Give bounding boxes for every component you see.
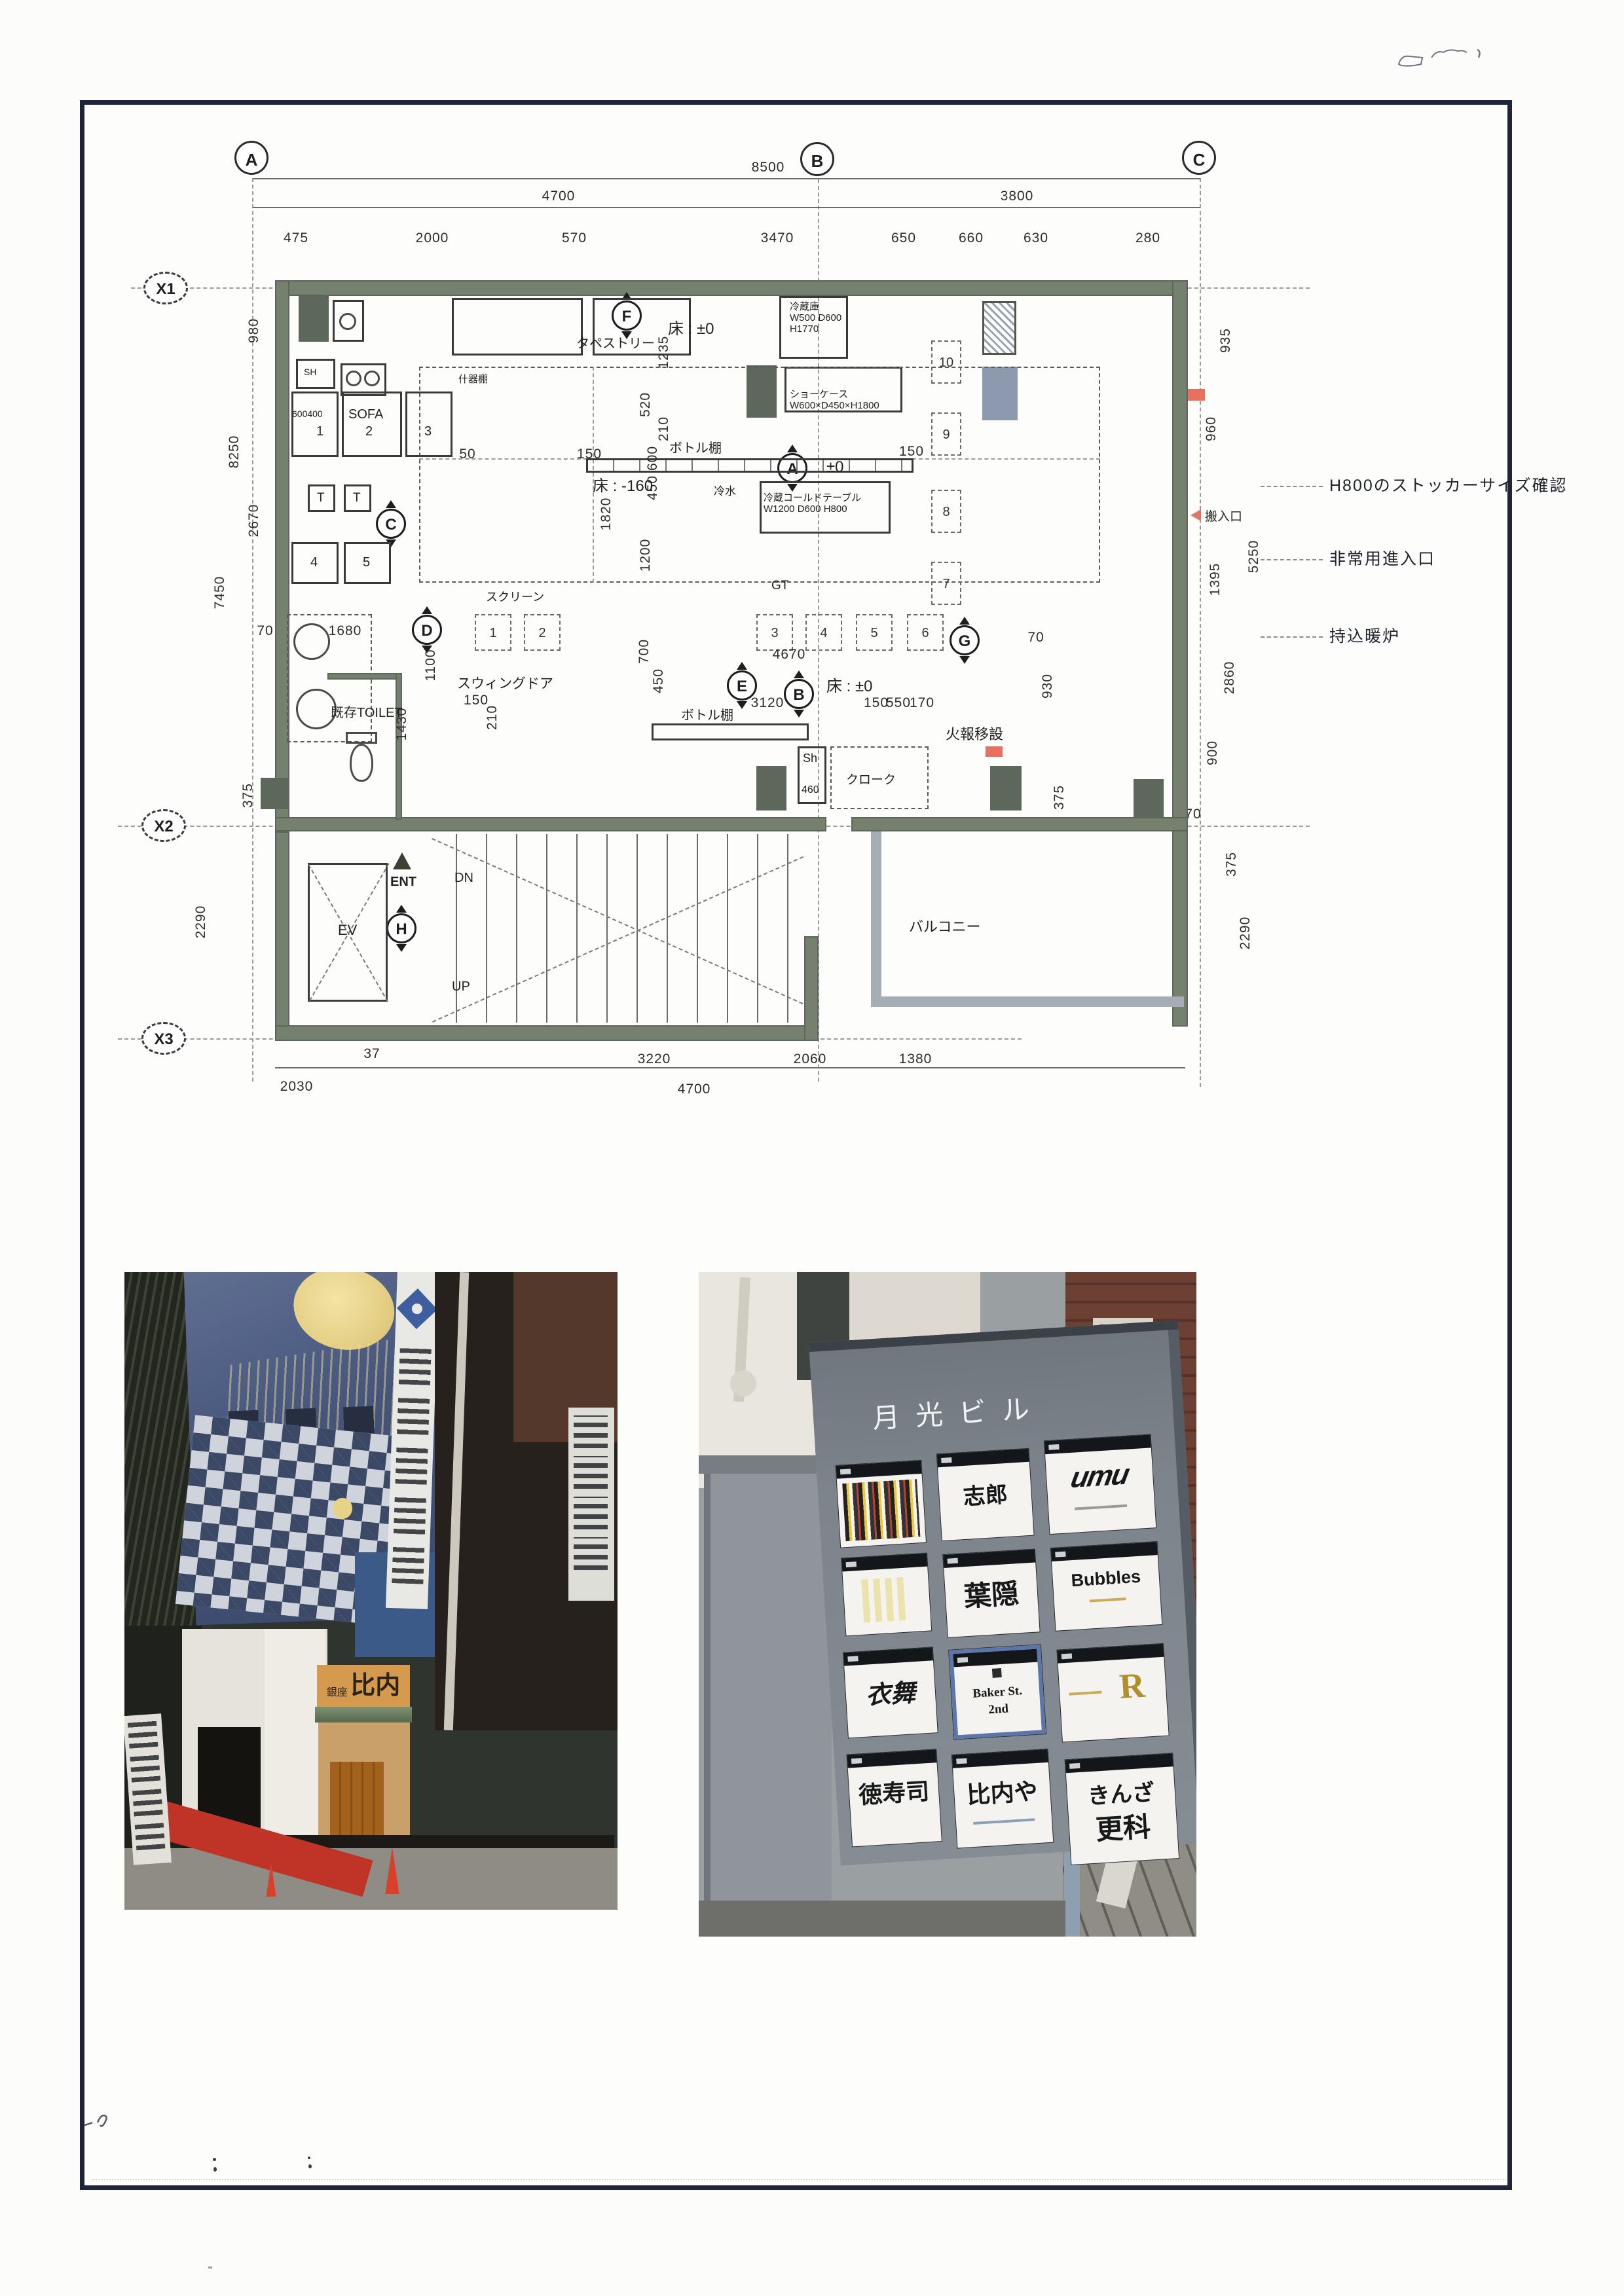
grid-bubble-c: C: [1182, 141, 1216, 175]
label-dn: DN: [454, 871, 473, 886]
equip-line: W500 D600: [790, 312, 841, 323]
pylon-text-block: [396, 1446, 428, 1485]
section-mark-b: B: [784, 679, 814, 709]
dim: 375: [1052, 771, 1067, 824]
tenant-panel-faint: [841, 1554, 931, 1636]
seat-no: 2: [538, 626, 545, 640]
grid-label: B: [811, 151, 824, 171]
section-mark-h: H: [386, 913, 416, 943]
tenant-panel: きんざ 更科: [1065, 1753, 1179, 1865]
bottle-shelf-bar: [586, 458, 913, 473]
dim: 3220: [638, 1051, 671, 1067]
tenant-panel: 志郎: [937, 1449, 1034, 1540]
counter-seat: 1: [475, 614, 511, 651]
column-hatched: [982, 301, 1016, 355]
grid-bubble-x1: X1: [143, 272, 188, 304]
dim: 900: [1205, 727, 1221, 779]
scanned-document-page: A B C X1 X2 X3 8500 4700 3800 475 2000 5…: [0, 0, 1624, 2296]
tenant-panel: 葉隠: [943, 1550, 1039, 1637]
equip-fridge: 冷蔵庫 W500 D600 H1770: [790, 301, 841, 335]
label-ent: ENT: [390, 875, 416, 890]
equip-line: H1770: [790, 323, 841, 335]
label-up: UP: [452, 979, 470, 994]
building-edge-highlight: [444, 1272, 469, 1730]
entrance-arrow: [393, 852, 411, 869]
balcony-wall-left: [871, 831, 881, 1007]
tenant-panel-baker: Baker St. 2nd: [949, 1645, 1046, 1739]
dim: 50: [459, 446, 475, 462]
photo-building-exterior: 銀座 比内や: [124, 1272, 618, 1910]
note-emergency-entry: 非常用進入口: [1329, 546, 1435, 570]
dim: 520: [638, 378, 654, 431]
panel-floor-strip: [943, 1550, 1035, 1569]
wall-table: 8: [931, 490, 961, 533]
dim: 2290: [1238, 907, 1253, 959]
section-mark-g: G: [950, 625, 980, 655]
dim: 475: [284, 230, 308, 246]
label-gt: GT: [771, 579, 788, 593]
note-leader: [1261, 559, 1323, 560]
note-leader: [1261, 636, 1323, 638]
panel-floor-strip: [1065, 1753, 1173, 1773]
floor-tick: [846, 1561, 857, 1567]
grid-label: X1: [156, 280, 175, 298]
dim: 150: [864, 695, 889, 711]
panel-floor-strip: [843, 1647, 933, 1666]
label-floor: 床 : ±0: [668, 316, 714, 338]
seat-no: 1: [316, 424, 323, 439]
carry-in-arrow: [1190, 509, 1201, 521]
pylon-text-block: [574, 1415, 608, 1448]
seat-no: 6: [921, 626, 929, 640]
tenant-name: R: [1078, 1662, 1186, 1709]
equip-showcase: ショーケース W600×D450×H1800: [790, 389, 879, 411]
label-bottle-shelf: ボトル棚: [669, 437, 722, 456]
tenant-panel: 比内や: [952, 1749, 1053, 1848]
storefront-pillar: [265, 1629, 325, 1845]
panel-floor-strip: [937, 1449, 1029, 1468]
grid-bubble-x2: X2: [141, 809, 186, 842]
floor-tick: [1048, 1444, 1059, 1450]
dim: 660: [959, 230, 984, 246]
column: [261, 778, 289, 809]
pencil-scribble-top: [1393, 38, 1505, 77]
seat-no: 8: [942, 505, 950, 519]
wall-lower-bottom: [275, 1025, 819, 1041]
dim: 570: [562, 230, 587, 246]
panel-subtext-bar: [1075, 1504, 1127, 1510]
burner: [364, 371, 380, 386]
sink-bowl: [339, 313, 356, 330]
toilet-fixture: [350, 744, 373, 782]
label-cloak: クローク: [846, 770, 896, 788]
seat-no: 10: [939, 355, 953, 370]
small-sign-pylon-right: [568, 1408, 614, 1601]
scan-dot: [308, 2157, 310, 2159]
scan-dot: [213, 2167, 217, 2172]
panel-subtext-bar: [973, 1818, 1035, 1825]
mark-label: B: [793, 686, 804, 704]
tenant-panel: 徳寿司: [847, 1749, 942, 1846]
label-balcony: バルコニー: [909, 915, 981, 936]
panel-floor-strip: [836, 1461, 922, 1479]
dim: 70: [1027, 630, 1044, 646]
counter-seat: 6: [907, 614, 944, 651]
label-bottle-shelf: ボトル棚: [681, 704, 733, 723]
dim: 2290: [193, 896, 209, 948]
burner: [346, 371, 361, 386]
storefront-awning: [315, 1707, 412, 1722]
mark-label: C: [385, 516, 396, 534]
dim: 630: [1024, 230, 1048, 246]
seat-no: 4: [310, 555, 318, 570]
wall-stair-right: [804, 936, 819, 1041]
panel-floor-strip: [953, 1649, 1037, 1667]
seat-no: 2: [365, 424, 373, 439]
equip-line: ショーケース: [790, 389, 879, 400]
grid-label: X3: [154, 1030, 173, 1048]
grid-label: A: [246, 150, 258, 170]
dim: 3470: [761, 230, 794, 246]
panel-floor-strip: [952, 1749, 1048, 1768]
label-sofa: SOFA: [348, 407, 383, 422]
table-label: T: [353, 491, 361, 505]
toilet-wall: [327, 673, 402, 680]
tenant-panel: Bubbles: [1051, 1542, 1162, 1631]
dim: 150: [577, 446, 602, 462]
mark-label: G: [959, 632, 971, 650]
seat-no: 3: [424, 424, 432, 439]
dim: 2670: [246, 494, 262, 547]
dim: 935: [1218, 314, 1234, 367]
label-fire-move: 火報移設: [946, 723, 1003, 744]
dim: 170: [910, 695, 934, 711]
grid-bubble-x3: X3: [141, 1022, 186, 1055]
wall-table: 10: [931, 340, 961, 384]
wall-top: [275, 280, 1188, 296]
label-swing-door: スウィングドア: [457, 673, 553, 693]
grid-label: C: [1193, 150, 1206, 170]
scan-dot: [213, 2158, 216, 2161]
utility-box: [704, 1468, 832, 1927]
tenant-name: 志郎: [938, 1475, 1032, 1512]
pencil-scribble-bottom: [82, 2103, 128, 2133]
label-floor: 床 : -160: [593, 473, 653, 496]
seat-no: 5: [870, 626, 877, 640]
label-toilet: 既存TOILET: [331, 702, 403, 721]
dim: 37: [363, 1046, 380, 1062]
tenant-panel: umu: [1044, 1434, 1156, 1534]
bottle-shelf-lower: [652, 723, 809, 740]
tenant-panel-r: R: [1057, 1644, 1168, 1742]
label-cold-water: 冷水: [714, 482, 736, 498]
tenant-name: 葉隠: [944, 1570, 1038, 1615]
pylon-text-block: [394, 1495, 426, 1535]
tenant-name: 徳寿司: [849, 1772, 940, 1811]
column: [756, 766, 786, 811]
mark-label: H: [396, 920, 407, 938]
dim: 700: [637, 625, 652, 678]
dim: 375: [1224, 838, 1240, 890]
tenant-name: 比内や: [953, 1772, 1051, 1812]
label-carry-in: 搬入口: [1205, 507, 1242, 524]
ground-below-pylon: [699, 1901, 1065, 1937]
pylon-text-block: [392, 1545, 424, 1584]
dim: 650: [891, 230, 916, 246]
seat-no: 9: [942, 428, 950, 442]
equip-line: W1200 D600 H800: [764, 503, 861, 515]
panel-floor-strip: [841, 1554, 927, 1572]
dim-line: [275, 1067, 1185, 1068]
dim: 1380: [899, 1051, 932, 1067]
carry-in-marker: [1188, 389, 1205, 401]
sign-row: [130, 1755, 160, 1783]
sign-row: [128, 1721, 158, 1749]
scan-artifact-line: [92, 2179, 1506, 2180]
tenant-panel-art: [836, 1461, 926, 1548]
dim: 2060: [794, 1051, 827, 1067]
scan-dot: [208, 2267, 212, 2269]
dim: 210: [485, 691, 500, 744]
pylon-text-block: [574, 1537, 608, 1570]
dim: 1200: [638, 529, 654, 581]
floor-tick: [1061, 1653, 1072, 1659]
note-leader: [1261, 486, 1323, 487]
grid-bubble-b: B: [800, 142, 834, 176]
fire-alarm-marker: [986, 746, 1003, 757]
dim: 1820: [599, 488, 614, 540]
dim: 1100: [423, 639, 439, 691]
dim: 1680: [329, 623, 362, 639]
tenant-name: Baker St.: [955, 1683, 1040, 1703]
dim-line: [253, 207, 1200, 208]
floor-tick: [956, 1758, 967, 1764]
pylon-text-block: [574, 1456, 608, 1489]
table-label: T: [317, 491, 325, 505]
equip-cold-table: 冷蔵コールドテーブル W1200 D600 H800: [764, 492, 861, 515]
wall-table: 9: [931, 412, 961, 456]
photo-tenant-sign: 月光ビル 志郎 umu 葉隠: [699, 1272, 1196, 1937]
dim: 70: [257, 623, 273, 639]
panel-floor-strip: [1044, 1434, 1151, 1454]
dim: 4700: [542, 189, 576, 204]
dim: 4670: [773, 647, 806, 663]
floor-tick: [941, 1457, 951, 1463]
note-hearth: 持込暖炉: [1329, 623, 1400, 647]
dim: 3800: [1001, 189, 1034, 204]
floor-tick: [847, 1656, 858, 1662]
sign-pylon: 月光ビル 志郎 umu 葉隠: [809, 1321, 1196, 1866]
utility-box-top: [699, 1455, 833, 1474]
tenant-name-line2: 更科: [1068, 1803, 1177, 1850]
dim: 960: [1204, 403, 1219, 455]
storefront-sign-prefix: 銀座: [327, 1687, 348, 1698]
equip-line: 冷蔵コールドテーブル: [764, 492, 861, 503]
counter-seat: 4: [805, 614, 842, 651]
label-sh-size: 460: [802, 784, 819, 796]
floor-tick: [957, 1657, 968, 1663]
dim: 550: [886, 695, 911, 711]
counter-outline: [419, 367, 1100, 583]
dim: 2000: [416, 230, 449, 246]
dim: 8250: [227, 426, 242, 478]
mark-label: D: [421, 622, 432, 640]
label-shelf: SH: [304, 367, 316, 377]
dim: 2030: [280, 1079, 314, 1095]
dim: 8500: [752, 160, 785, 175]
label-utensil-shelf: 什器棚: [458, 372, 488, 386]
toilet-tank: [346, 732, 377, 744]
checker-lamp: [333, 1498, 352, 1519]
wall-left: [275, 280, 289, 837]
baker-crest-dot: [992, 1668, 1002, 1678]
sidewalk: [124, 1848, 618, 1910]
note-stocker: H800のストッカーサイズ確認: [1329, 473, 1568, 496]
grid-bubble-a: A: [234, 141, 268, 175]
equip-line: 冷蔵庫: [790, 301, 841, 312]
storefront-sign-board: 銀座 比内や: [317, 1665, 410, 1707]
dim: 375: [240, 769, 256, 822]
floor-tick: [840, 1468, 851, 1474]
equip-line: W600×D450×H1800: [790, 400, 879, 411]
column: [299, 296, 329, 342]
dim: 2860: [1222, 651, 1238, 704]
seat-no: 1: [489, 626, 496, 640]
pylon-text-block: [399, 1346, 432, 1385]
wall-table: 7: [931, 562, 961, 605]
tenant-name-line2: 2nd: [956, 1700, 1041, 1719]
grid-label: X2: [154, 818, 173, 835]
column: [990, 766, 1022, 811]
floor-tick: [1055, 1552, 1065, 1558]
grid-line-c: [1200, 178, 1201, 1087]
sign-row: [132, 1789, 163, 1817]
section-mark-c: C: [376, 509, 406, 539]
sign-row: [135, 1822, 166, 1850]
counter-seat: 5: [856, 614, 893, 651]
dim: 980: [246, 304, 262, 357]
label-sh: Sh: [803, 752, 817, 765]
dim: 280: [1135, 230, 1160, 246]
pylon-text-block: [397, 1396, 430, 1435]
panel-floor-strip: [1057, 1644, 1164, 1664]
faint-yellow-mark: [861, 1577, 910, 1623]
floor-tick: [851, 1758, 862, 1764]
sofa-box: [291, 392, 339, 457]
wall-x2-left: [275, 817, 826, 831]
column: [1134, 779, 1164, 817]
dim: 5250: [1246, 530, 1262, 583]
dim: 3120: [751, 695, 784, 711]
dim: 1395: [1208, 553, 1223, 606]
dim: 4700: [678, 1082, 711, 1097]
building-name: 月光ビル: [871, 1386, 1046, 1436]
mosaic-art: [842, 1479, 920, 1541]
label-floor: 床 : ±0: [826, 673, 873, 696]
seat-no: 4: [820, 626, 827, 640]
counter-seat: 3: [756, 614, 793, 651]
seat-no: 7: [942, 577, 950, 591]
scan-dot: [308, 2164, 312, 2168]
label-screen: スクリーン: [486, 588, 544, 605]
dim: 450: [651, 655, 667, 707]
panel-subtext-bar: [1090, 1597, 1126, 1602]
pylon-text-block: [574, 1497, 608, 1529]
tenant-name: Bubbles: [1052, 1565, 1160, 1592]
tenant-name: umu: [1044, 1457, 1156, 1497]
pipe-elbow: [730, 1370, 756, 1396]
floor-tick: [948, 1558, 958, 1564]
label-floor: ±0: [826, 458, 844, 477]
tenant-name: [843, 1572, 928, 1577]
tenant-panel: 衣舞: [843, 1647, 938, 1738]
wall-right: [1172, 280, 1188, 1027]
panel-floor-strip: [847, 1749, 937, 1768]
dim: 150: [899, 444, 924, 460]
tenant-name: 衣舞: [845, 1671, 936, 1712]
dim-line: [253, 178, 1200, 179]
counter-seat: 2: [524, 614, 561, 651]
floor-tick: [1069, 1763, 1080, 1769]
label-ev: EV: [338, 922, 357, 939]
label-tapestry: タペストリー: [576, 333, 655, 352]
balcony-wall-bottom: [871, 996, 1184, 1007]
panel-floor-strip: [1051, 1542, 1158, 1561]
dim: 930: [1040, 660, 1056, 712]
label-sofa-dim: 600400: [292, 409, 323, 419]
seat-no: 3: [771, 626, 778, 640]
kitchen-unit: [452, 298, 583, 355]
mark-label: E: [737, 678, 747, 695]
seat-no: 5: [363, 555, 370, 570]
dim: 7450: [212, 566, 228, 619]
wall-lower-left: [275, 831, 289, 1041]
wall-x2-right: [851, 817, 1188, 831]
